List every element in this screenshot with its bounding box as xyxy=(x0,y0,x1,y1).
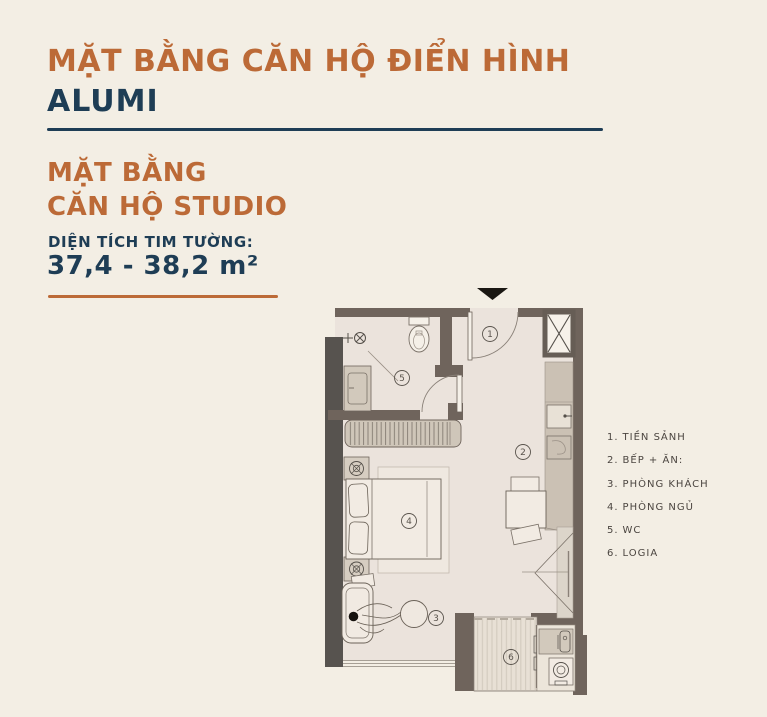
area-label: DIỆN TÍCH TIM TƯỜNG: xyxy=(48,233,253,251)
kitchen-sink-icon xyxy=(547,405,572,428)
unit-subtitle: MẶT BẰNG CĂN HỘ STUDIO xyxy=(47,156,347,224)
vanity-cabinet xyxy=(344,366,371,411)
legend-item: 6.LOGIA xyxy=(607,542,709,565)
pillow-icon xyxy=(348,522,368,555)
legend-num: 4. xyxy=(607,502,619,513)
subtitle-line-1: MẶT BẰNG xyxy=(47,156,347,190)
shaft xyxy=(545,312,573,355)
legend-item: 1.TIỀN SẢNH xyxy=(607,426,709,449)
legend-label: LOGIA xyxy=(623,548,659,559)
orange-divider xyxy=(48,295,278,298)
chair-icon xyxy=(511,477,539,492)
svg-text:3: 3 xyxy=(433,614,439,624)
legend-num: 3. xyxy=(607,479,619,490)
floor-plan-drawing: 1 2 3 4 5 6 xyxy=(322,285,590,697)
title-line-1: MẶT BẰNG CĂN HỘ ĐIỂN HÌNH xyxy=(47,42,627,82)
legend-item: 4.PHÒNG NGỦ xyxy=(607,496,709,519)
legend-label: BẾP + ĂN: xyxy=(623,455,684,466)
legend-item: 2.BẾP + ĂN: xyxy=(607,449,709,472)
navy-divider xyxy=(47,128,603,131)
floor-plan: 1 2 3 4 5 6 xyxy=(322,285,590,697)
page-title: MẶT BẰNG CĂN HỘ ĐIỂN HÌNH ALUMI xyxy=(47,42,627,122)
logia xyxy=(474,617,538,691)
title-line-2: ALUMI xyxy=(47,82,627,122)
legend-label: PHÒNG NGỦ xyxy=(623,502,694,513)
legend-label: WC xyxy=(623,525,642,536)
legend-num: 1. xyxy=(607,432,619,443)
svg-text:2: 2 xyxy=(520,448,526,458)
svg-text:6: 6 xyxy=(508,653,514,663)
toilet-icon xyxy=(409,317,429,352)
entrance-arrow-icon xyxy=(477,288,508,300)
legend-num: 5. xyxy=(607,525,619,536)
nightstand-icon xyxy=(344,457,369,480)
cooktop-icon xyxy=(547,436,571,459)
legend-item: 5.WC xyxy=(607,519,709,542)
bed-area xyxy=(344,457,449,581)
laundry-counter xyxy=(539,629,573,654)
legend-label: PHÒNG KHÁCH xyxy=(623,479,709,490)
washing-machine-icon xyxy=(549,658,573,685)
kitchen xyxy=(545,362,573,530)
legend-item: 3.PHÒNG KHÁCH xyxy=(607,473,709,496)
legend-num: 2. xyxy=(607,455,619,466)
pillow-icon xyxy=(348,483,369,517)
room-legend: 1.TIỀN SẢNH 2.BẾP + ĂN: 3.PHÒNG KHÁCH 4.… xyxy=(607,426,709,566)
wardrobe xyxy=(345,420,461,447)
area-value: 37,4 - 38,2 m² xyxy=(47,251,259,281)
window-lines xyxy=(343,661,455,667)
legend-num: 6. xyxy=(607,548,619,559)
legend-label: TIỀN SẢNH xyxy=(623,432,686,443)
poster: MẶT BẰNG CĂN HỘ ĐIỂN HÌNH ALUMI MẶT BẰNG… xyxy=(0,0,767,717)
svg-text:1: 1 xyxy=(487,330,493,340)
svg-text:5: 5 xyxy=(399,374,405,384)
subtitle-line-2: CĂN HỘ STUDIO xyxy=(47,190,347,224)
svg-text:4: 4 xyxy=(406,517,412,527)
coffee-table-icon xyxy=(401,601,428,628)
